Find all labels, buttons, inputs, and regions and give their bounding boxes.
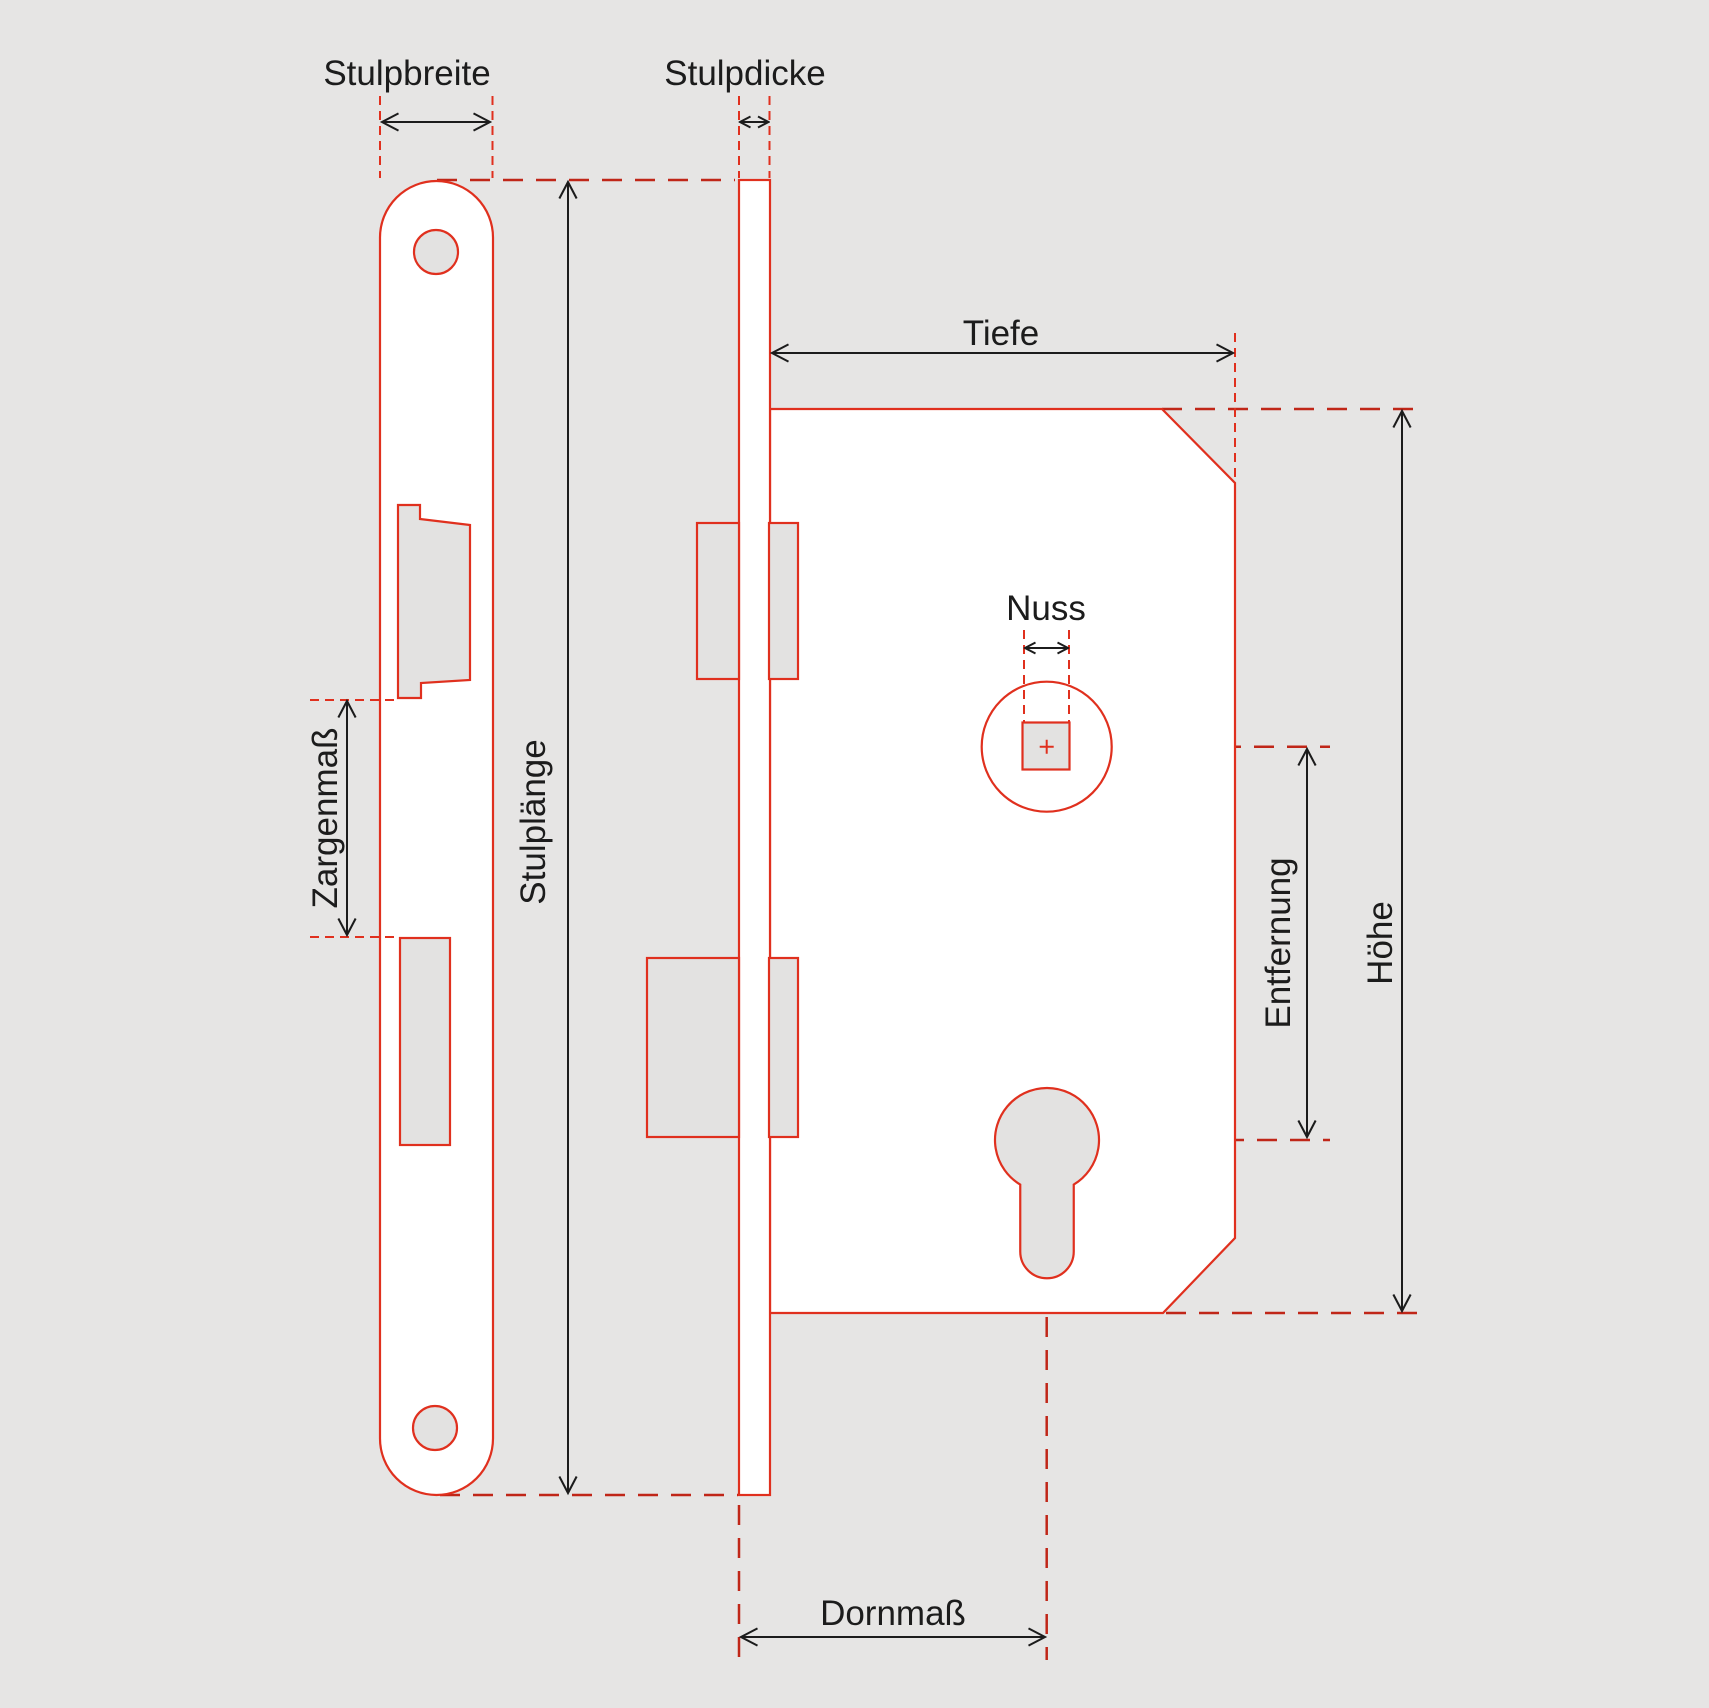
latch-side-outer (697, 523, 739, 679)
lock-side-view (647, 180, 1235, 1495)
screw-hole-bottom (413, 1406, 457, 1450)
label-nuss: Nuss (1006, 589, 1086, 628)
label-entfernung: Entfernung (1259, 857, 1298, 1028)
label-stulpdicke: Stulpdicke (664, 54, 825, 93)
bolt-cutout (400, 938, 450, 1145)
screw-hole-top (414, 230, 458, 274)
latch-side-inner (769, 523, 798, 679)
label-dornmass: Dornmaß (820, 1594, 966, 1633)
lock-dimension-diagram: Stulpbreite Stulpdicke Tiefe Nuss Dornma… (0, 0, 1709, 1708)
faceplate-front-view (380, 181, 493, 1495)
label-hoehe: Höhe (1361, 901, 1400, 985)
latch-cutout (398, 505, 470, 698)
lock-case-outline (770, 409, 1235, 1313)
faceplate-side-view (739, 180, 770, 1495)
label-stulpbreite: Stulpbreite (323, 54, 490, 93)
label-zargenmass: Zargenmaß (306, 728, 345, 909)
bolt-side-inner (769, 958, 798, 1137)
label-stulplaenge: Stulplänge (514, 739, 553, 904)
faceplate-front-outline (380, 181, 493, 1495)
label-tiefe: Tiefe (963, 314, 1040, 353)
diagram-canvas: Stulpbreite Stulpdicke Tiefe Nuss Dornma… (0, 0, 1709, 1708)
bolt-side-outer (647, 958, 739, 1137)
